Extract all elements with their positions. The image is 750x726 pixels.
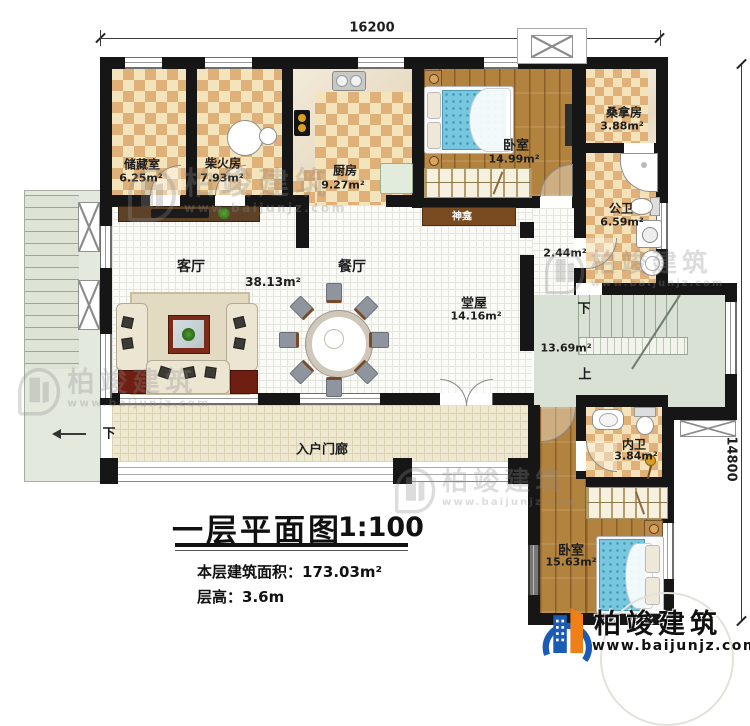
porch-pillar <box>100 458 118 484</box>
pillow <box>427 92 441 119</box>
porch-pillar <box>508 458 530 484</box>
wash-basin <box>592 409 624 430</box>
nightstand <box>644 520 663 537</box>
toilet <box>636 416 654 435</box>
column <box>520 222 534 238</box>
window <box>205 57 252 69</box>
plant <box>218 208 230 219</box>
wall <box>576 395 668 407</box>
stair-treads <box>578 295 688 337</box>
porch-down-label: 下 <box>102 423 115 442</box>
wash-basin <box>640 250 664 276</box>
porch-label: 入户门廊 <box>296 439 348 458</box>
plant <box>182 328 195 341</box>
nightstand <box>424 152 442 169</box>
floor-height-value: 3.6m <box>242 588 284 606</box>
firewood-label: 柴火房 <box>205 155 241 172</box>
dining-chair <box>326 283 342 303</box>
dim-extension <box>100 30 101 46</box>
public-bath-label: 公卫 <box>609 200 633 217</box>
wardrobe <box>586 487 668 519</box>
stairs-area: 13.69m² <box>540 342 591 355</box>
cooking-vat <box>227 120 263 156</box>
kitchen-sink <box>332 71 366 91</box>
shrine-label: 神龛 <box>452 208 472 223</box>
bedroom1-label: 卧室 <box>503 135 529 154</box>
top-dimension-label: 16200 <box>349 21 394 36</box>
wall <box>386 195 412 207</box>
window <box>484 57 518 69</box>
stair-arrow-line <box>60 433 86 435</box>
floor-height-line: 层高：3.6m <box>197 586 284 607</box>
sauna-ledge <box>648 69 656 143</box>
window <box>100 226 112 268</box>
column-box <box>78 202 100 252</box>
brand-logo-site: www.baijunjz.com <box>592 638 750 654</box>
hall-area: 14.16m² <box>450 310 501 323</box>
floor-area-label: 本层建筑面积： <box>197 563 302 581</box>
floor-height-label: 层高： <box>197 588 242 606</box>
door-opening <box>576 283 602 295</box>
title-underline-thin <box>175 550 408 551</box>
brand-logo: 柏竣建筑 www.baijunjz.com <box>538 602 738 670</box>
kitchen-label: 厨房 <box>333 162 357 179</box>
television <box>151 209 209 218</box>
wall <box>296 195 309 248</box>
wall <box>412 69 424 208</box>
chimney-flue <box>531 35 573 58</box>
sauna-area: 3.88m² <box>600 120 643 133</box>
sauna-label: 桑拿房 <box>606 104 642 121</box>
dining-chair <box>279 332 299 348</box>
storage-label: 储藏室 <box>124 156 160 173</box>
wall <box>586 477 668 487</box>
floor-plan-page: { "dims": { "top": "16200", "right": "14… <box>0 0 750 674</box>
plan-scale: 1:100 <box>338 512 424 543</box>
right-dimension-label: 14800 <box>724 436 739 481</box>
dining-chair <box>369 332 389 348</box>
stairs-up-label: 上 <box>578 364 591 383</box>
side-table <box>230 370 258 394</box>
dining-label: 餐厅 <box>338 256 366 276</box>
fridge <box>380 163 413 194</box>
wall <box>282 69 293 196</box>
sofa-main <box>146 360 230 394</box>
public-bath-area: 6.59m² <box>600 216 643 229</box>
toilet <box>630 198 653 215</box>
door-opening <box>540 196 572 208</box>
wall <box>186 69 197 196</box>
wardrobe <box>424 168 532 198</box>
wall <box>572 57 586 208</box>
bedroom2-area: 15.63m² <box>545 556 596 569</box>
side-table <box>118 370 146 394</box>
column-box <box>78 280 100 330</box>
floor-area-value: 173.03m² <box>302 563 382 581</box>
living-label: 客厅 <box>177 256 205 276</box>
sofa-left <box>116 303 148 371</box>
pillow <box>427 122 441 149</box>
column-box <box>680 420 736 437</box>
porch-pillar <box>393 458 412 484</box>
title-underline <box>175 543 408 547</box>
sofa-right <box>226 303 258 371</box>
wall <box>520 255 534 351</box>
right-dimension-line <box>741 64 742 622</box>
porch-steps <box>112 462 530 484</box>
hallway-area: 2.44m² <box>543 247 586 260</box>
living-area: 38.13m² <box>245 275 301 289</box>
firewood-area: 7.93m² <box>200 172 243 185</box>
stair-treads <box>25 195 79 369</box>
bedroom1-area: 14.99m² <box>488 153 539 166</box>
window <box>725 302 737 374</box>
cooking-vat-small <box>259 127 277 145</box>
stair-landing <box>578 337 688 355</box>
wall <box>662 407 737 420</box>
window <box>528 545 540 595</box>
stove <box>294 110 310 136</box>
brand-logo-name: 柏竣建筑 <box>594 602 722 641</box>
stairs-down-label: 下 <box>577 298 590 317</box>
coffee-table <box>168 315 210 354</box>
tv-panel <box>565 104 572 146</box>
nightstand <box>424 70 442 87</box>
kitchen-area: 9.27m² <box>321 179 364 192</box>
window <box>100 334 112 398</box>
inner-bath-area: 3.84m² <box>614 450 657 463</box>
brand-logo-icon <box>538 602 592 668</box>
floor-area-line: 本层建筑面积：173.03m² <box>197 561 382 582</box>
dim-extension <box>660 30 661 46</box>
double-bed <box>424 86 514 154</box>
window <box>358 57 404 69</box>
window <box>125 57 162 69</box>
door-opening <box>624 143 654 153</box>
dining-chair <box>326 377 342 397</box>
pillow <box>645 545 660 573</box>
storage-area: 6.25m² <box>119 172 162 185</box>
door-opening <box>576 441 586 471</box>
tv-console <box>118 206 260 222</box>
